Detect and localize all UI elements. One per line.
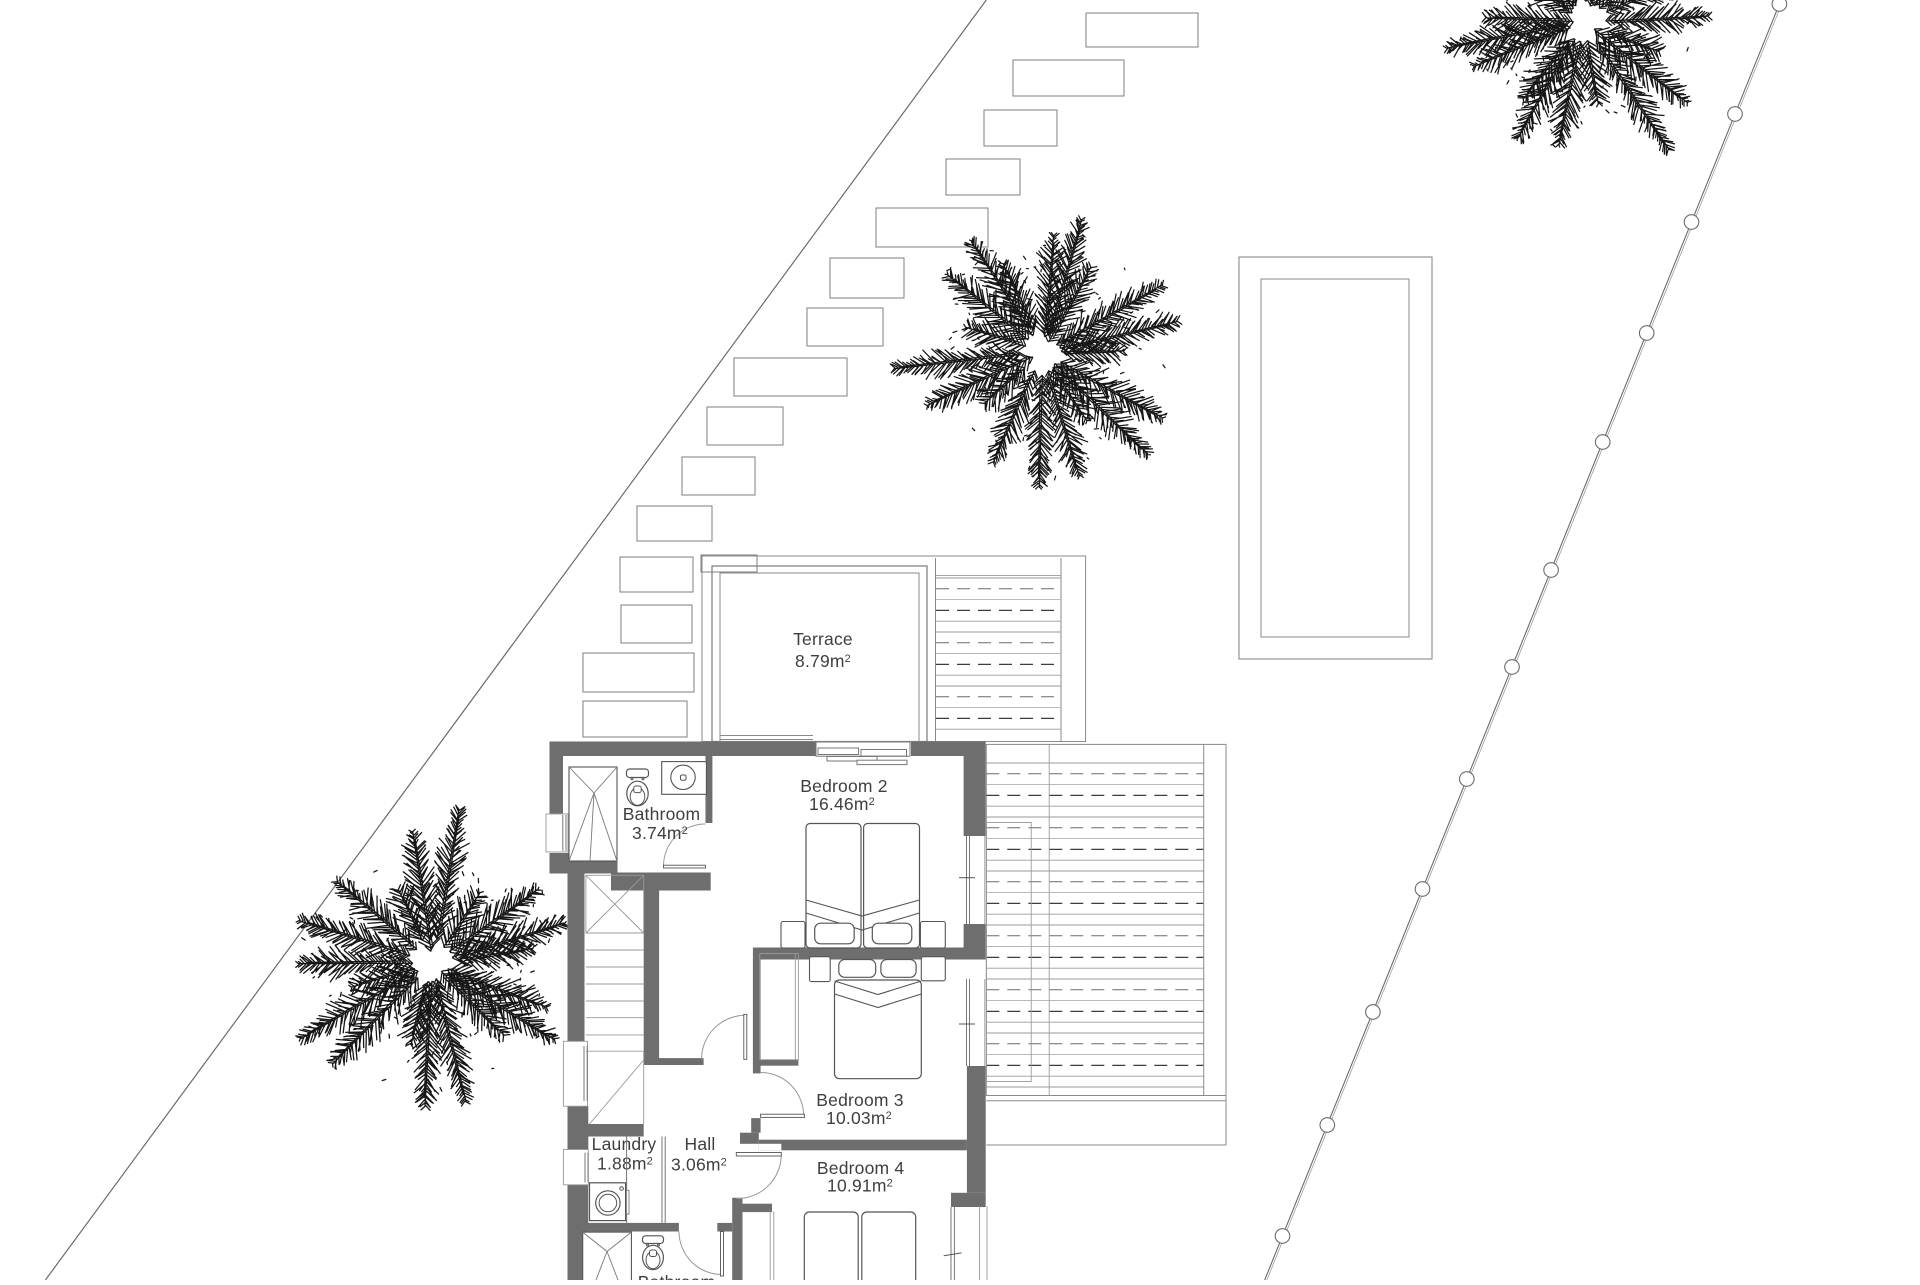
svg-text:Laundry: Laundry xyxy=(592,1134,657,1154)
svg-text:Terrace: Terrace xyxy=(793,629,853,649)
svg-text:16.46m2: 16.46m2 xyxy=(809,794,875,814)
svg-text:1.88m2: 1.88m2 xyxy=(597,1154,653,1174)
svg-text:3.74m2: 3.74m2 xyxy=(632,823,688,843)
svg-text:Bathroom: Bathroom xyxy=(623,804,700,824)
svg-text:Hall: Hall xyxy=(685,1134,716,1154)
svg-text:3.06m2: 3.06m2 xyxy=(671,1155,727,1175)
svg-text:10.91m2: 10.91m2 xyxy=(827,1176,893,1196)
svg-text:Bedroom 3: Bedroom 3 xyxy=(816,1090,903,1110)
svg-text:Bedroom 2: Bedroom 2 xyxy=(800,776,887,796)
svg-text:8.79m2: 8.79m2 xyxy=(795,651,851,671)
svg-text:10.03m2: 10.03m2 xyxy=(826,1108,892,1128)
svg-text:Bathroom: Bathroom xyxy=(638,1272,715,1280)
